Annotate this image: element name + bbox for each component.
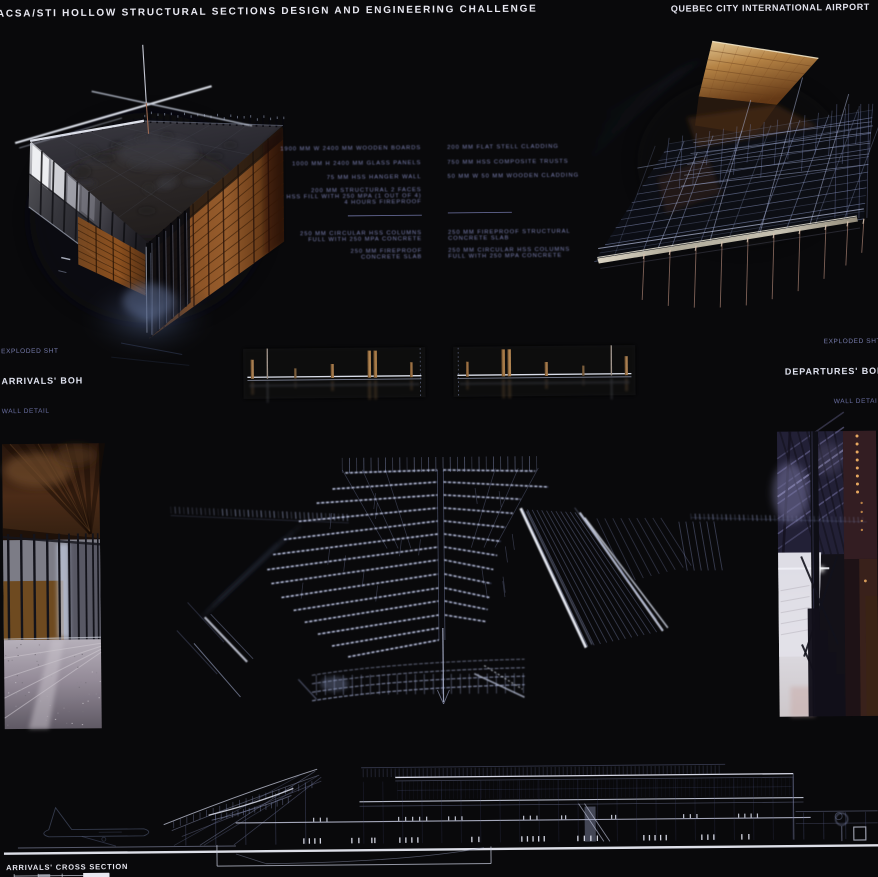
svg-text:EXPLODED SHT: EXPLODED SHT <box>824 338 878 346</box>
svg-text:ARRIVALS' BOH: ARRIVALS' BOH <box>1 375 83 386</box>
svg-text:50 MM W 50 MM WOODEN CLADDING: 50 MM W 50 MM WOODEN CLADDING <box>447 173 579 180</box>
svg-text:WALL DETAIL: WALL DETAIL <box>2 408 50 415</box>
svg-text:750 MM HSS COMPOSITE TRUSTS: 750 MM HSS COMPOSITE TRUSTS <box>447 159 568 166</box>
svg-text:CONCRETE SLAB: CONCRETE SLAB <box>361 254 422 261</box>
svg-text:QUEBEC CITY INTERNATIONAL AIRP: QUEBEC CITY INTERNATIONAL AIRPORT <box>671 2 870 14</box>
svg-text:CONCRETE SLAB: CONCRETE SLAB <box>448 235 509 242</box>
svg-text:75 MM HSS HANGER WALL: 75 MM HSS HANGER WALL <box>327 174 422 181</box>
svg-text:1900 MM W 2400 MM WOODEN BOARD: 1900 MM W 2400 MM WOODEN BOARDS <box>280 145 421 152</box>
svg-text:ARRIVALS' CROSS SECTION: ARRIVALS' CROSS SECTION <box>6 862 128 872</box>
svg-text:1000 MM H 2400 MM GLASS PANELS: 1000 MM H 2400 MM GLASS PANELS <box>292 160 421 167</box>
svg-text:4 HOURS FIREPROOF: 4 HOURS FIREPROOF <box>344 199 421 206</box>
svg-text:200 MM FLAT STELL CLADDING: 200 MM FLAT STELL CLADDING <box>447 144 559 151</box>
svg-text:EXPLODED SHT: EXPLODED SHT <box>1 348 58 356</box>
svg-text:ACSA/STI HOLLOW STRUCTURAL SEC: ACSA/STI HOLLOW STRUCTURAL SECTIONS DESI… <box>0 4 538 20</box>
svg-text:FULL WITH 250 MPA CONCRETE: FULL WITH 250 MPA CONCRETE <box>308 236 422 243</box>
svg-text:DEPARTURES' BOH: DEPARTURES' BOH <box>785 366 878 377</box>
svg-text:FULL WITH 250 MPA CONCRETE: FULL WITH 250 MPA CONCRETE <box>448 253 562 260</box>
svg-text:WALL DETAIL: WALL DETAIL <box>834 398 878 405</box>
